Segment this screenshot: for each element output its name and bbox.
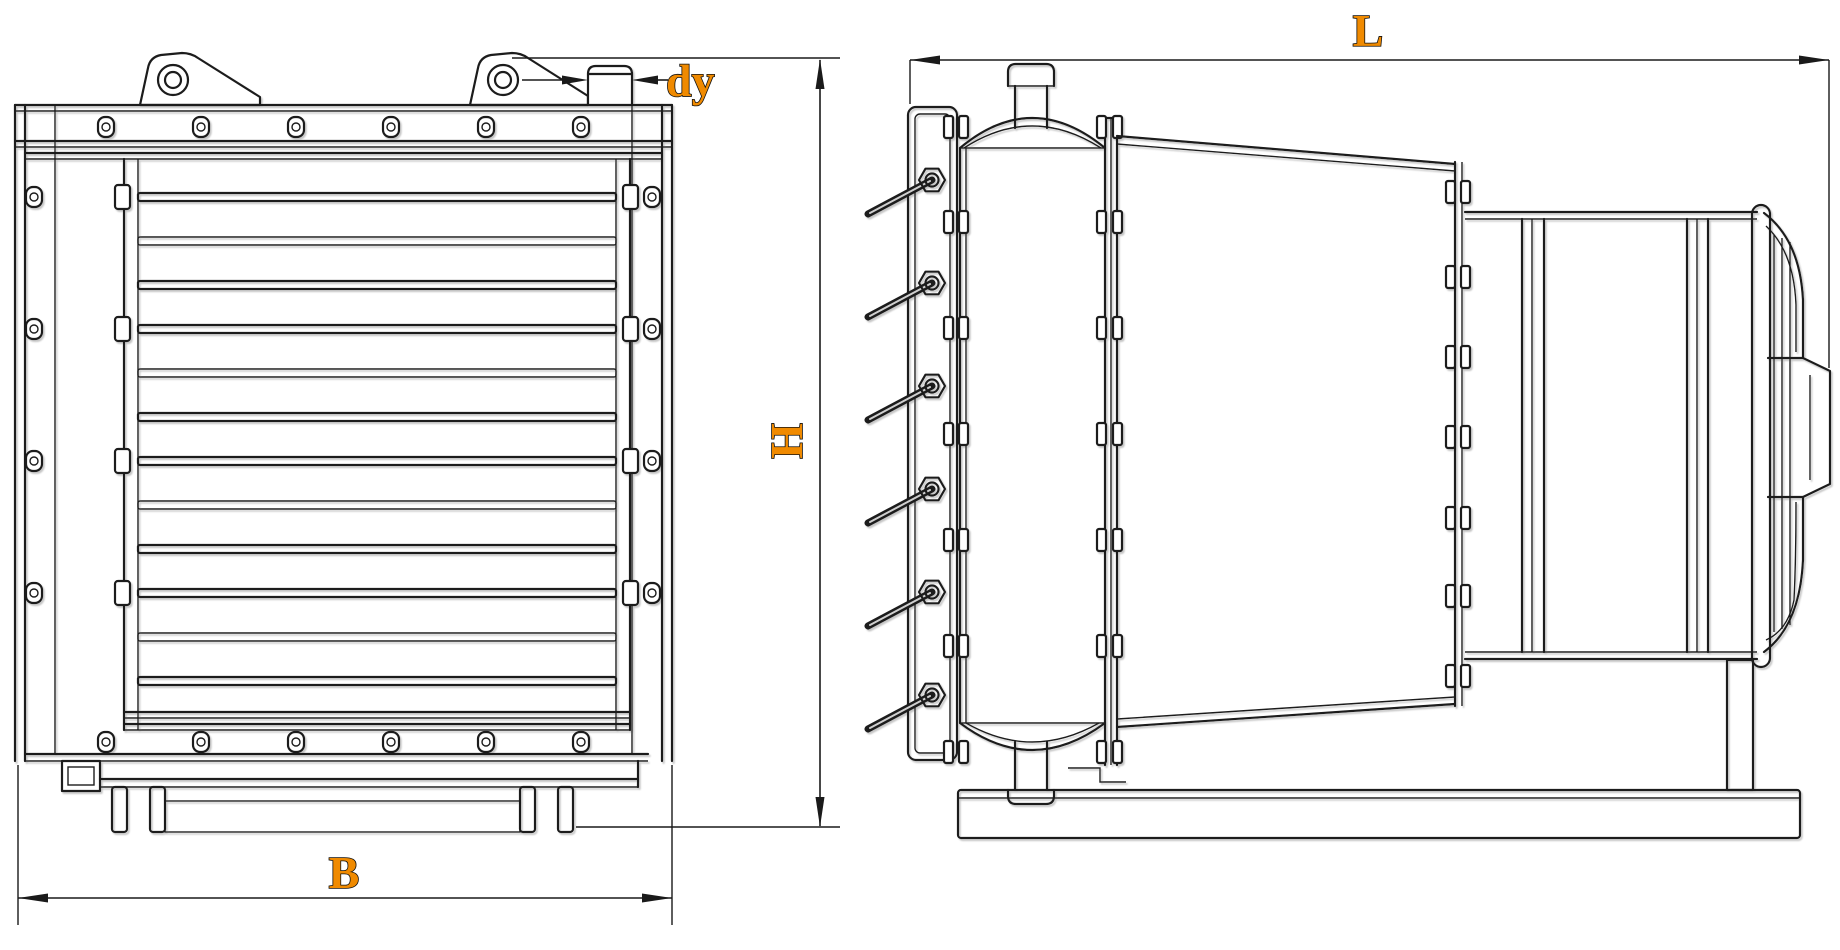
bottom-bolt-row [98, 732, 589, 752]
support-leg [1727, 660, 1753, 790]
handle [868, 581, 945, 626]
top-bolt-row [98, 117, 589, 137]
arrowhead-left [18, 894, 48, 903]
fan-inlet-clamp-bolts [1446, 181, 1470, 687]
arrowhead-right [1799, 56, 1829, 65]
handle [868, 169, 945, 214]
label-nozzle-diameter: dy [666, 55, 715, 106]
tank-bottom-nozzle [1008, 742, 1054, 804]
label-height: H [761, 423, 812, 459]
handle [868, 684, 945, 729]
front-view [15, 53, 672, 832]
lifting-lug-left [140, 53, 260, 105]
side-columns [15, 105, 672, 761]
handle [868, 478, 945, 523]
handle [868, 272, 945, 317]
arrowhead-top [816, 59, 825, 89]
base-frame [958, 790, 1800, 838]
drawing-canvas: L H B dy [0, 0, 1840, 950]
fan-housing [1465, 205, 1770, 667]
handle [868, 375, 945, 420]
column-bolts [26, 187, 660, 603]
arrowhead-left [910, 56, 940, 65]
bottom-rail [25, 754, 648, 761]
label-length: L [1353, 5, 1384, 56]
louver-grid [138, 193, 616, 685]
base-assembly [62, 761, 638, 832]
arrowhead-left [632, 76, 658, 85]
transition-cone [1117, 136, 1462, 727]
arrowhead-right [562, 76, 588, 85]
louver-handles [868, 169, 945, 729]
label-width: B [329, 847, 360, 898]
cone-inlet-clamp-bolts [1097, 116, 1122, 763]
arrowhead-bottom [816, 797, 825, 827]
technical-drawing: L H B dy [0, 0, 1840, 950]
arrowhead-right [642, 894, 672, 903]
dimension-L: L [910, 5, 1829, 368]
side-view [868, 64, 1830, 838]
louver-hinge-clips [115, 185, 638, 605]
fan-rear-guard [1764, 213, 1830, 652]
top-nozzle-stub [588, 66, 632, 105]
